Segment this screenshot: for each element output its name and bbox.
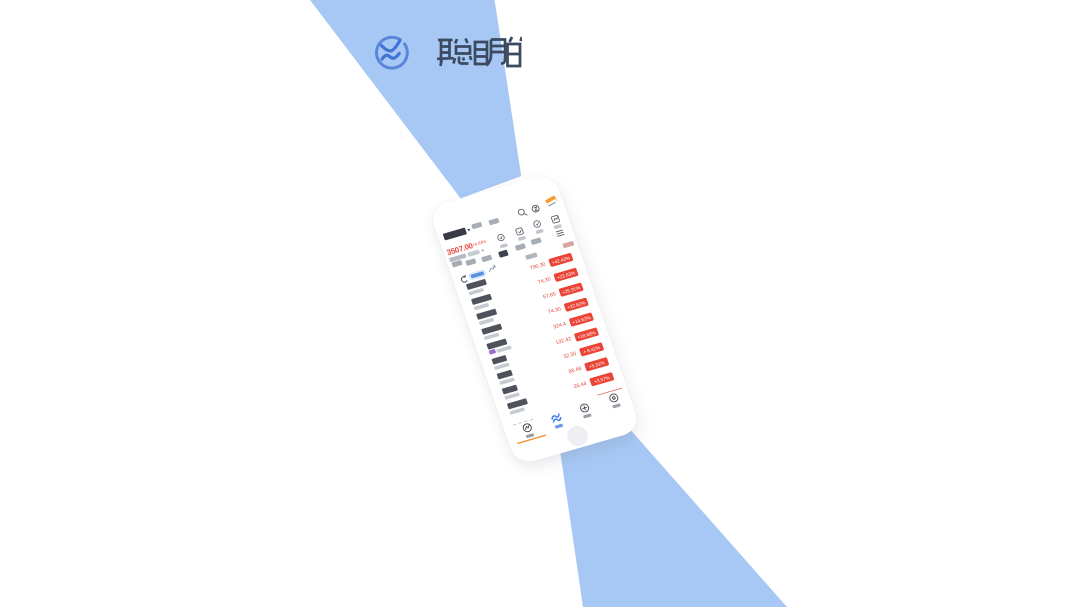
svg-text:32.30: 32.30 xyxy=(562,351,577,360)
svg-text:74.30: 74.30 xyxy=(547,306,562,315)
svg-text:+0.84%: +0.84% xyxy=(471,239,487,248)
svg-text:88.48: 88.48 xyxy=(567,366,582,375)
svg-text:790.30: 790.30 xyxy=(529,261,546,271)
svg-text:26.44: 26.44 xyxy=(573,381,588,390)
svg-text:132.42: 132.42 xyxy=(554,336,571,346)
svg-text:324.4: 324.4 xyxy=(552,321,567,330)
svg-text:74.30: 74.30 xyxy=(537,276,552,285)
svg-text:57.65: 57.65 xyxy=(542,291,557,300)
